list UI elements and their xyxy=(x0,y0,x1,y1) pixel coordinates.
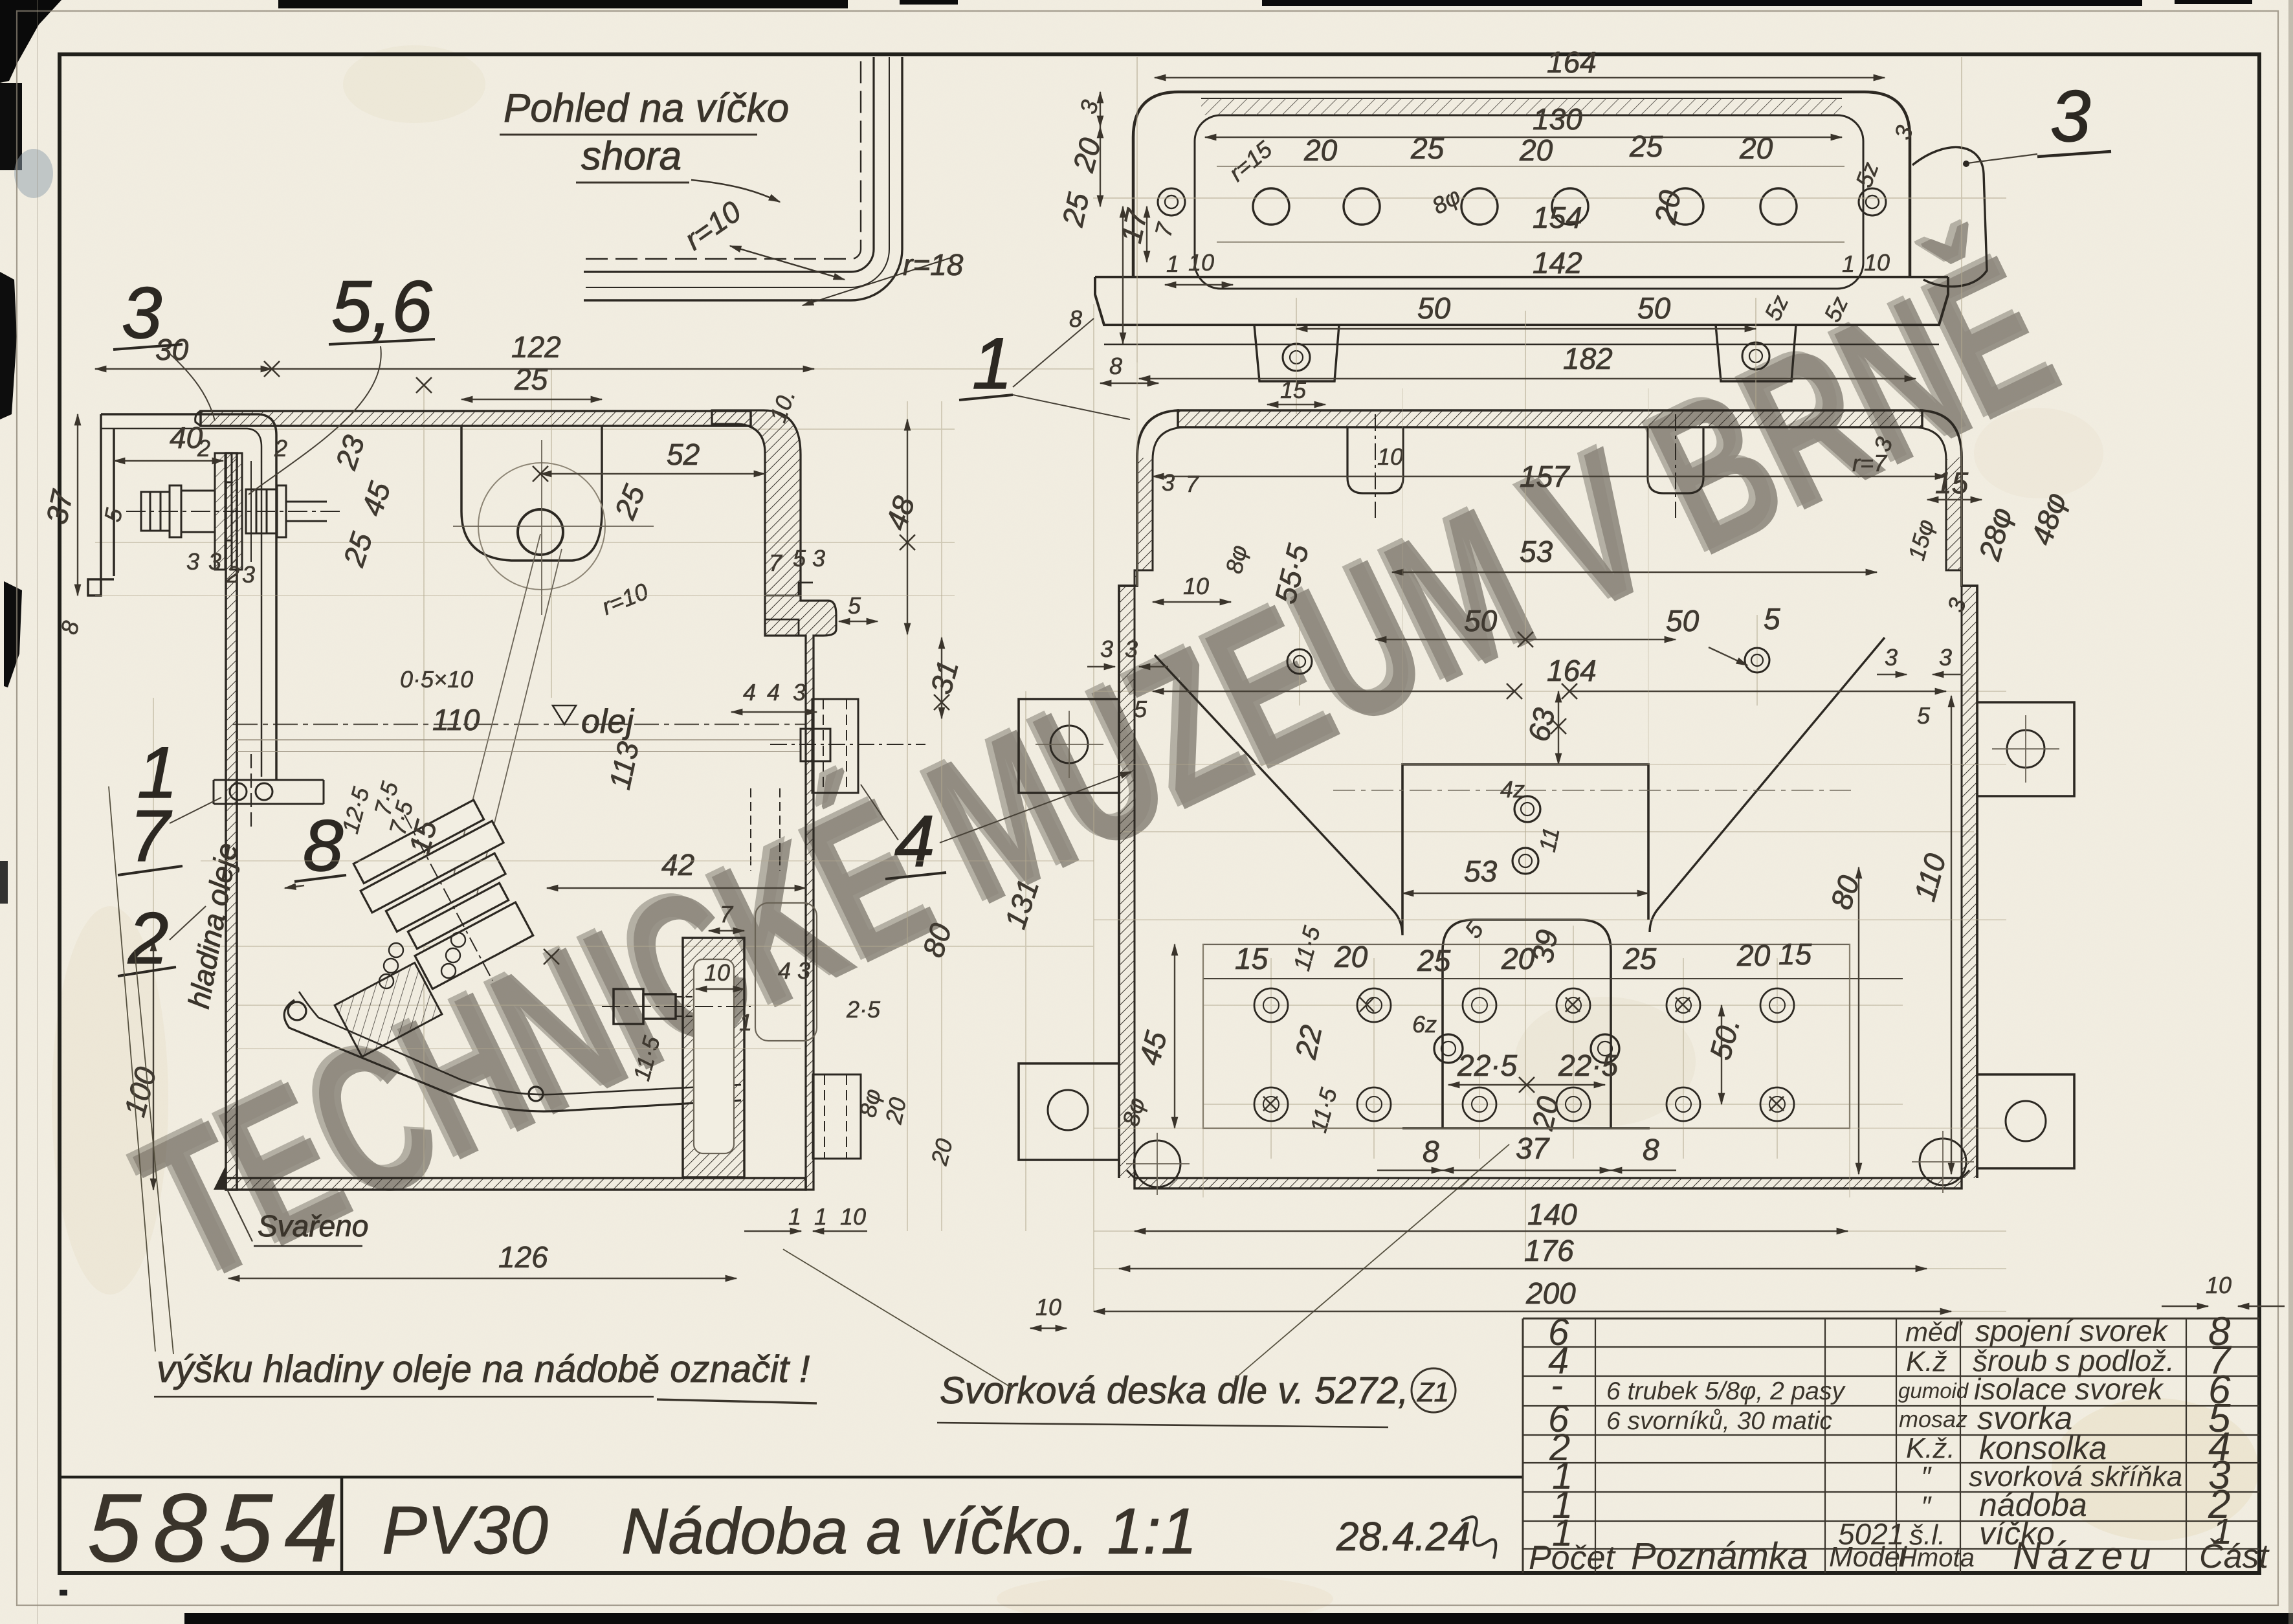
svg-text:1: 1 xyxy=(972,323,1012,404)
svg-text:K.ž.: K.ž. xyxy=(1906,1432,1955,1464)
svg-text:3: 3 xyxy=(2050,76,2090,157)
svg-text:2: 2 xyxy=(197,435,210,462)
svg-text:3: 3 xyxy=(1125,636,1138,662)
svg-text:3: 3 xyxy=(1939,644,1952,671)
svg-text:2·5: 2·5 xyxy=(846,996,881,1023)
svg-text:53: 53 xyxy=(1520,535,1553,568)
svg-text:20: 20 xyxy=(1501,942,1535,975)
svg-text:25: 25 xyxy=(1417,944,1451,977)
svg-text:25: 25 xyxy=(1056,190,1096,230)
svg-text:spojení svorek: spojení svorek xyxy=(1975,1314,2169,1348)
svg-text:10: 10 xyxy=(2206,1272,2232,1298)
svg-text:3: 3 xyxy=(1885,644,1898,671)
svg-text:7: 7 xyxy=(720,901,734,928)
svg-text:6 svorníků, 30 matic: 6 svorníků, 30 matic xyxy=(1606,1407,1832,1435)
svg-text:164: 164 xyxy=(1547,45,1597,79)
svg-text:Model: Model xyxy=(1829,1541,1907,1573)
svg-text:3: 3 xyxy=(812,545,825,572)
svg-text:22·5: 22·5 xyxy=(1457,1049,1517,1082)
svg-text:50: 50 xyxy=(1417,291,1451,325)
svg-text:7: 7 xyxy=(129,795,172,876)
svg-text:164: 164 xyxy=(1547,654,1597,687)
svg-text:r=18: r=18 xyxy=(903,248,964,282)
svg-text:Nádoba a víčko. 1:1: Nádoba a víčko. 1:1 xyxy=(621,1495,1197,1568)
svg-text:1: 1 xyxy=(1842,250,1855,277)
svg-text:8: 8 xyxy=(1069,306,1082,332)
svg-text:1: 1 xyxy=(739,1009,752,1036)
svg-text:gumoid: gumoid xyxy=(1898,1379,1969,1403)
svg-text:50: 50 xyxy=(1464,604,1498,638)
svg-text:142: 142 xyxy=(1533,246,1582,280)
svg-text:8: 8 xyxy=(1423,1135,1439,1168)
svg-text:5: 5 xyxy=(1134,696,1147,722)
svg-text:5: 5 xyxy=(1764,602,1780,636)
svg-text:2: 2 xyxy=(226,561,239,588)
svg-text:7: 7 xyxy=(1186,471,1200,497)
svg-text:20: 20 xyxy=(1334,940,1368,973)
svg-text:Počet: Počet xyxy=(1529,1539,1617,1577)
svg-text:Hmota: Hmota xyxy=(1898,1544,1975,1572)
svg-text:15: 15 xyxy=(1235,942,1268,975)
svg-text:3: 3 xyxy=(1100,636,1113,662)
svg-text:3: 3 xyxy=(1162,469,1175,496)
svg-text:4: 4 xyxy=(743,679,756,706)
svg-text:5: 5 xyxy=(1917,702,1931,729)
svg-text:10: 10 xyxy=(704,959,730,986)
svg-text:8: 8 xyxy=(303,805,343,886)
svg-text:50: 50 xyxy=(1637,291,1671,325)
svg-text:Svařeno: Svařeno xyxy=(258,1209,368,1243)
svg-text:6z: 6z xyxy=(1412,1011,1437,1038)
svg-text:10: 10 xyxy=(1188,249,1214,276)
svg-text:3: 3 xyxy=(242,561,255,588)
svg-text:8: 8 xyxy=(1643,1133,1659,1166)
svg-text:182: 182 xyxy=(1563,342,1613,375)
svg-text:10: 10 xyxy=(1864,249,1890,276)
svg-text:Poznámka: Poznámka xyxy=(1631,1535,1808,1577)
svg-text:5854: 5854 xyxy=(87,1473,350,1582)
svg-text:20: 20 xyxy=(1736,939,1771,972)
svg-text:200: 200 xyxy=(1525,1276,1576,1310)
svg-text:42: 42 xyxy=(661,848,694,882)
svg-text:37: 37 xyxy=(1516,1131,1550,1165)
svg-text:olej: olej xyxy=(581,703,634,740)
svg-text:10: 10 xyxy=(1036,1294,1061,1320)
svg-text:52: 52 xyxy=(667,438,700,471)
svg-text:28.4.24: 28.4.24 xyxy=(1336,1515,1470,1559)
svg-text:20: 20 xyxy=(1519,133,1553,167)
svg-text:měď: měď xyxy=(1905,1317,1963,1347)
svg-text:4: 4 xyxy=(767,679,780,706)
svg-text:7: 7 xyxy=(769,550,783,576)
svg-text:Z1: Z1 xyxy=(1417,1377,1449,1407)
svg-text:15: 15 xyxy=(1280,377,1307,403)
svg-text:15: 15 xyxy=(1778,937,1812,971)
svg-text:Část: Část xyxy=(2199,1538,2270,1575)
svg-text:r=7: r=7 xyxy=(1852,450,1888,476)
svg-text:3: 3 xyxy=(793,679,806,706)
svg-text:20: 20 xyxy=(1525,1093,1566,1133)
svg-text:10: 10 xyxy=(840,1203,866,1230)
svg-text:122: 122 xyxy=(511,330,561,364)
svg-text:130: 130 xyxy=(1533,102,1582,136)
svg-text:25: 25 xyxy=(1410,131,1445,165)
svg-text:5: 5 xyxy=(793,545,806,572)
svg-text:22: 22 xyxy=(1289,1022,1329,1062)
svg-text:20: 20 xyxy=(1303,133,1338,167)
svg-text:140: 140 xyxy=(1527,1197,1577,1231)
svg-text:3: 3 xyxy=(797,957,810,984)
svg-text:shora: shora xyxy=(581,134,681,179)
svg-text:PV30: PV30 xyxy=(382,1493,548,1568)
svg-text:25: 25 xyxy=(1629,129,1663,163)
svg-text:3: 3 xyxy=(186,548,199,575)
svg-text:176: 176 xyxy=(1524,1234,1574,1267)
svg-text:4z: 4z xyxy=(1500,776,1525,803)
svg-text:10: 10 xyxy=(1377,443,1403,470)
svg-text:6 trubek 5/8φ, 2 pasy: 6 trubek 5/8φ, 2 pasy xyxy=(1606,1377,1846,1405)
svg-text:2: 2 xyxy=(127,898,168,979)
svg-text:8: 8 xyxy=(1109,353,1122,379)
svg-text:157: 157 xyxy=(1520,460,1570,493)
svg-text:154: 154 xyxy=(1533,201,1582,234)
svg-text:Svorková deska dle v. 5272,: Svorková deska dle v. 5272, xyxy=(940,1370,1408,1412)
svg-text:1: 1 xyxy=(1166,250,1179,277)
svg-text:Pohled na víčko: Pohled na víčko xyxy=(504,86,789,131)
svg-text:1: 1 xyxy=(814,1203,827,1230)
svg-text:Názeu: Názeu xyxy=(2013,1534,2157,1577)
svg-text:110: 110 xyxy=(432,703,480,737)
svg-text:20: 20 xyxy=(1739,131,1773,165)
svg-text:4: 4 xyxy=(778,957,791,984)
svg-text:2: 2 xyxy=(274,435,287,462)
svg-text:53: 53 xyxy=(1464,854,1498,888)
svg-text:15: 15 xyxy=(1935,466,1969,500)
svg-text:50: 50 xyxy=(1666,604,1700,638)
svg-text:20: 20 xyxy=(880,1095,912,1127)
svg-text:25: 25 xyxy=(514,362,548,396)
svg-text:5,6: 5,6 xyxy=(331,266,432,347)
svg-text:20: 20 xyxy=(1648,188,1687,227)
svg-text:″: ″ xyxy=(1921,1491,1932,1522)
svg-text:4: 4 xyxy=(894,801,935,882)
svg-text:mosaz: mosaz xyxy=(1899,1406,1967,1432)
svg-text:126: 126 xyxy=(498,1240,548,1274)
svg-text:3: 3 xyxy=(122,273,162,353)
svg-text:1: 1 xyxy=(788,1203,801,1230)
svg-text:10: 10 xyxy=(1183,573,1209,599)
svg-text:3: 3 xyxy=(208,548,221,575)
svg-text:25: 25 xyxy=(1623,942,1657,975)
svg-text:K.ž: K.ž xyxy=(1906,1346,1947,1377)
svg-text:″: ″ xyxy=(1921,1461,1932,1493)
svg-text:22·5: 22·5 xyxy=(1558,1049,1618,1082)
svg-text:5: 5 xyxy=(848,592,861,619)
svg-text:0·5×10: 0·5×10 xyxy=(400,666,473,693)
svg-text:výšku hladiny oleje na nádobě: výšku hladiny oleje na nádobě označit ! xyxy=(157,1348,810,1390)
